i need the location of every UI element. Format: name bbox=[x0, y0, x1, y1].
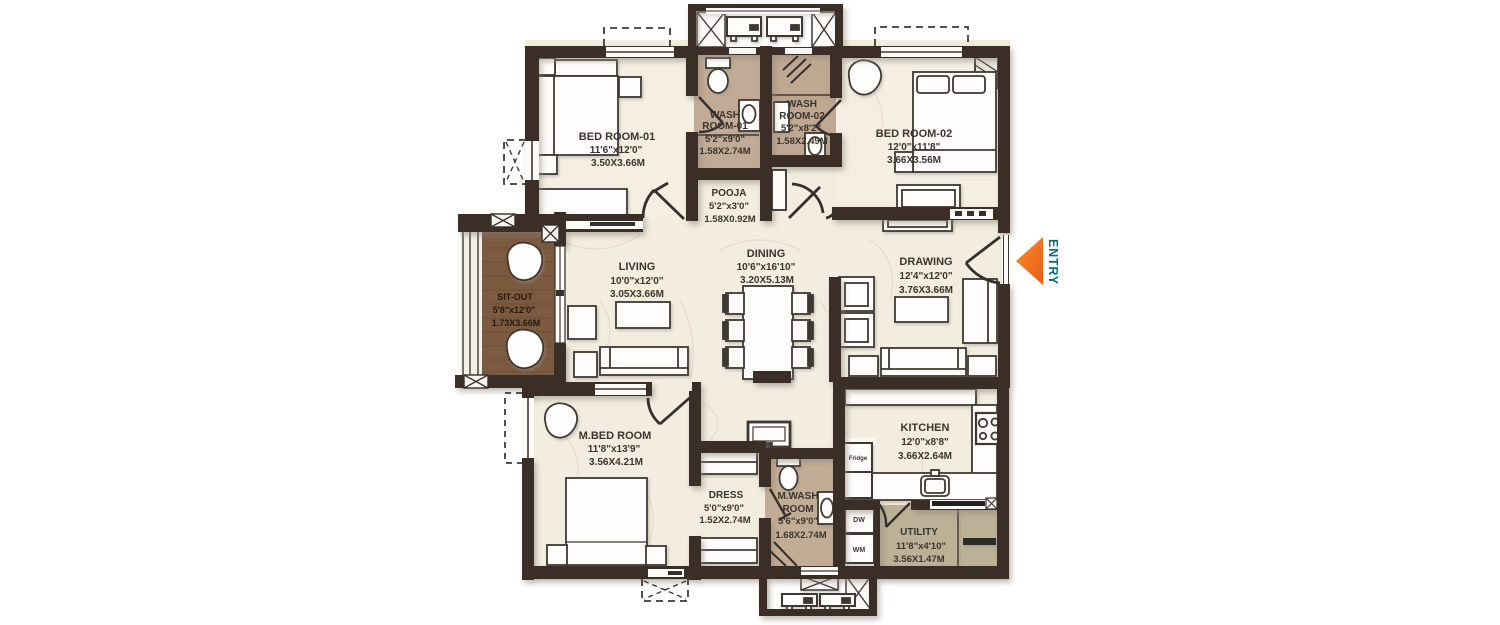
svg-text:1.73X3.66M: 1.73X3.66M bbox=[492, 318, 541, 328]
svg-text:12'0"x11'8": 12'0"x11'8" bbox=[888, 142, 941, 153]
svg-text:ROOM-01: ROOM-01 bbox=[702, 121, 748, 132]
svg-text:3.50X3.66M: 3.50X3.66M bbox=[591, 158, 645, 169]
svg-text:ROOM-02: ROOM-02 bbox=[779, 111, 825, 122]
svg-text:11'8"x13'9": 11'8"x13'9" bbox=[588, 444, 641, 455]
svg-text:Fridge: Fridge bbox=[849, 456, 868, 462]
svg-text:12'4"x12'0": 12'4"x12'0" bbox=[899, 271, 952, 282]
svg-text:10'6"x16'10": 10'6"x16'10" bbox=[737, 262, 796, 273]
svg-text:M.WASH: M.WASH bbox=[777, 491, 818, 502]
svg-text:DW: DW bbox=[853, 517, 865, 524]
svg-text:BED ROOM-01: BED ROOM-01 bbox=[579, 131, 655, 143]
svg-text:5'2"x3'0": 5'2"x3'0" bbox=[709, 201, 749, 212]
svg-text:3.20X5.13M: 3.20X5.13M bbox=[740, 275, 794, 286]
svg-text:12'0"x8'8": 12'0"x8'8" bbox=[901, 437, 949, 448]
svg-text:LIVING: LIVING bbox=[619, 261, 656, 273]
svg-text:3.66X3.56M: 3.66X3.56M bbox=[887, 155, 941, 166]
svg-text:KITCHEN: KITCHEN bbox=[901, 422, 950, 434]
svg-text:5'2"x8'2": 5'2"x8'2" bbox=[781, 123, 821, 134]
svg-text:3.56X4.21M: 3.56X4.21M bbox=[589, 457, 643, 468]
svg-text:3.56X1.47M: 3.56X1.47M bbox=[893, 554, 944, 565]
svg-text:1.58X2.74M: 1.58X2.74M bbox=[699, 146, 750, 157]
svg-text:UTILITY: UTILITY bbox=[900, 527, 938, 538]
svg-text:POOJA: POOJA bbox=[711, 188, 746, 199]
svg-text:BED ROOM-02: BED ROOM-02 bbox=[876, 128, 952, 140]
svg-text:1.68X2.74M: 1.68X2.74M bbox=[775, 530, 826, 541]
svg-text:11'8"x4'10": 11'8"x4'10" bbox=[896, 541, 946, 552]
svg-text:3.76X3.66M: 3.76X3.66M bbox=[899, 285, 953, 296]
svg-text:1.52X2.74M: 1.52X2.74M bbox=[699, 515, 750, 526]
svg-text:DRAWING: DRAWING bbox=[899, 256, 952, 268]
svg-text:WASH: WASH bbox=[710, 110, 740, 121]
svg-text:DRESS: DRESS bbox=[709, 490, 744, 501]
svg-text:ROOM: ROOM bbox=[782, 504, 813, 515]
svg-text:WASH: WASH bbox=[787, 99, 817, 110]
svg-text:SIT-OUT: SIT-OUT bbox=[497, 292, 533, 302]
svg-text:5'8"x12'0": 5'8"x12'0" bbox=[493, 305, 536, 315]
svg-text:3.66X2.64M: 3.66X2.64M bbox=[898, 451, 952, 462]
svg-text:ENTRY: ENTRY bbox=[1046, 239, 1060, 285]
svg-text:M.BED ROOM: M.BED ROOM bbox=[579, 430, 652, 442]
svg-text:1.58X2.49M: 1.58X2.49M bbox=[776, 136, 827, 147]
svg-text:11'6"x12'0": 11'6"x12'0" bbox=[590, 145, 643, 156]
svg-text:5'2"x9'0": 5'2"x9'0" bbox=[705, 134, 745, 145]
svg-text:5'0"x9'0": 5'0"x9'0" bbox=[704, 503, 744, 514]
svg-text:3.05X3.66M: 3.05X3.66M bbox=[610, 289, 664, 300]
svg-text:WM: WM bbox=[853, 547, 866, 554]
svg-text:1.58X0.92M: 1.58X0.92M bbox=[704, 214, 755, 225]
svg-text:DINING: DINING bbox=[747, 248, 786, 260]
svg-text:5'6"x9'0": 5'6"x9'0" bbox=[778, 516, 818, 527]
svg-text:10'0"x12'0": 10'0"x12'0" bbox=[610, 276, 663, 287]
